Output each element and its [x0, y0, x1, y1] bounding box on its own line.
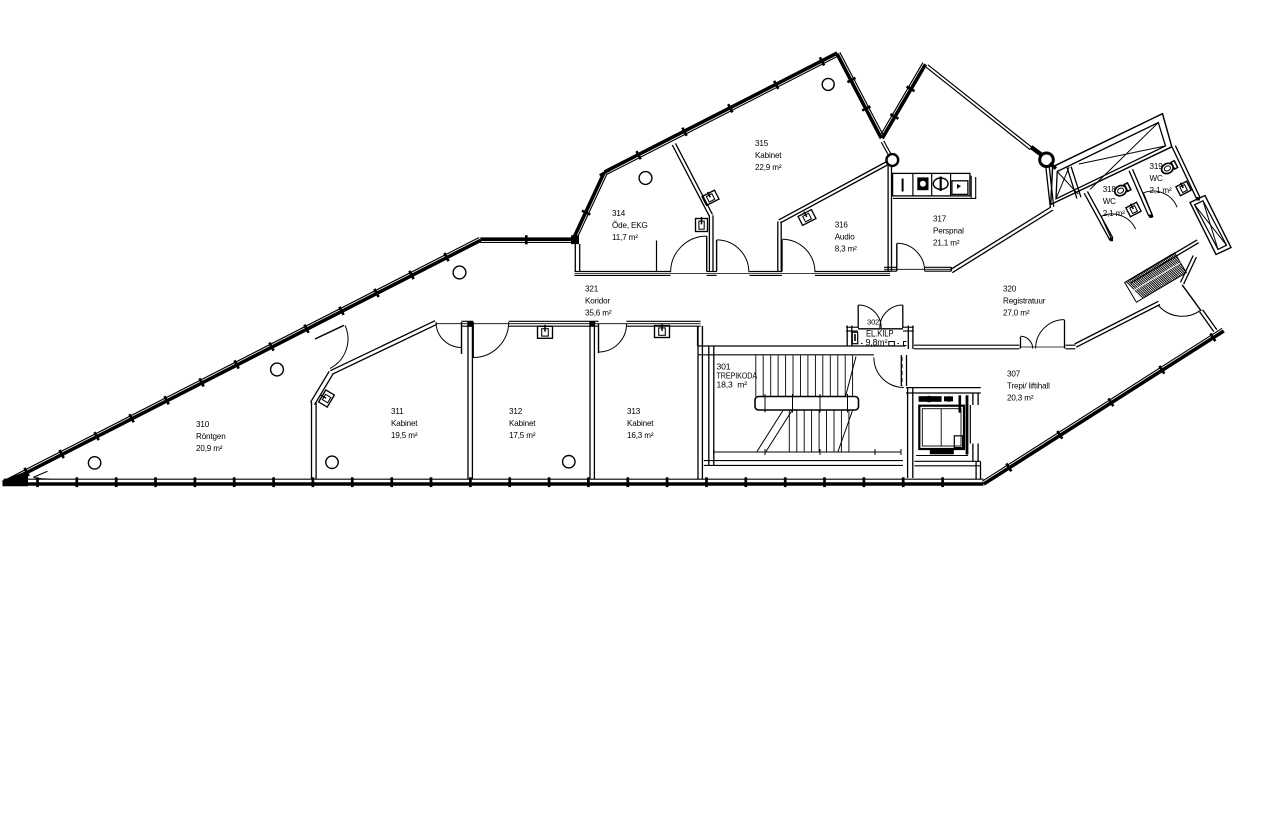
svg-text:302: 302	[867, 318, 879, 327]
